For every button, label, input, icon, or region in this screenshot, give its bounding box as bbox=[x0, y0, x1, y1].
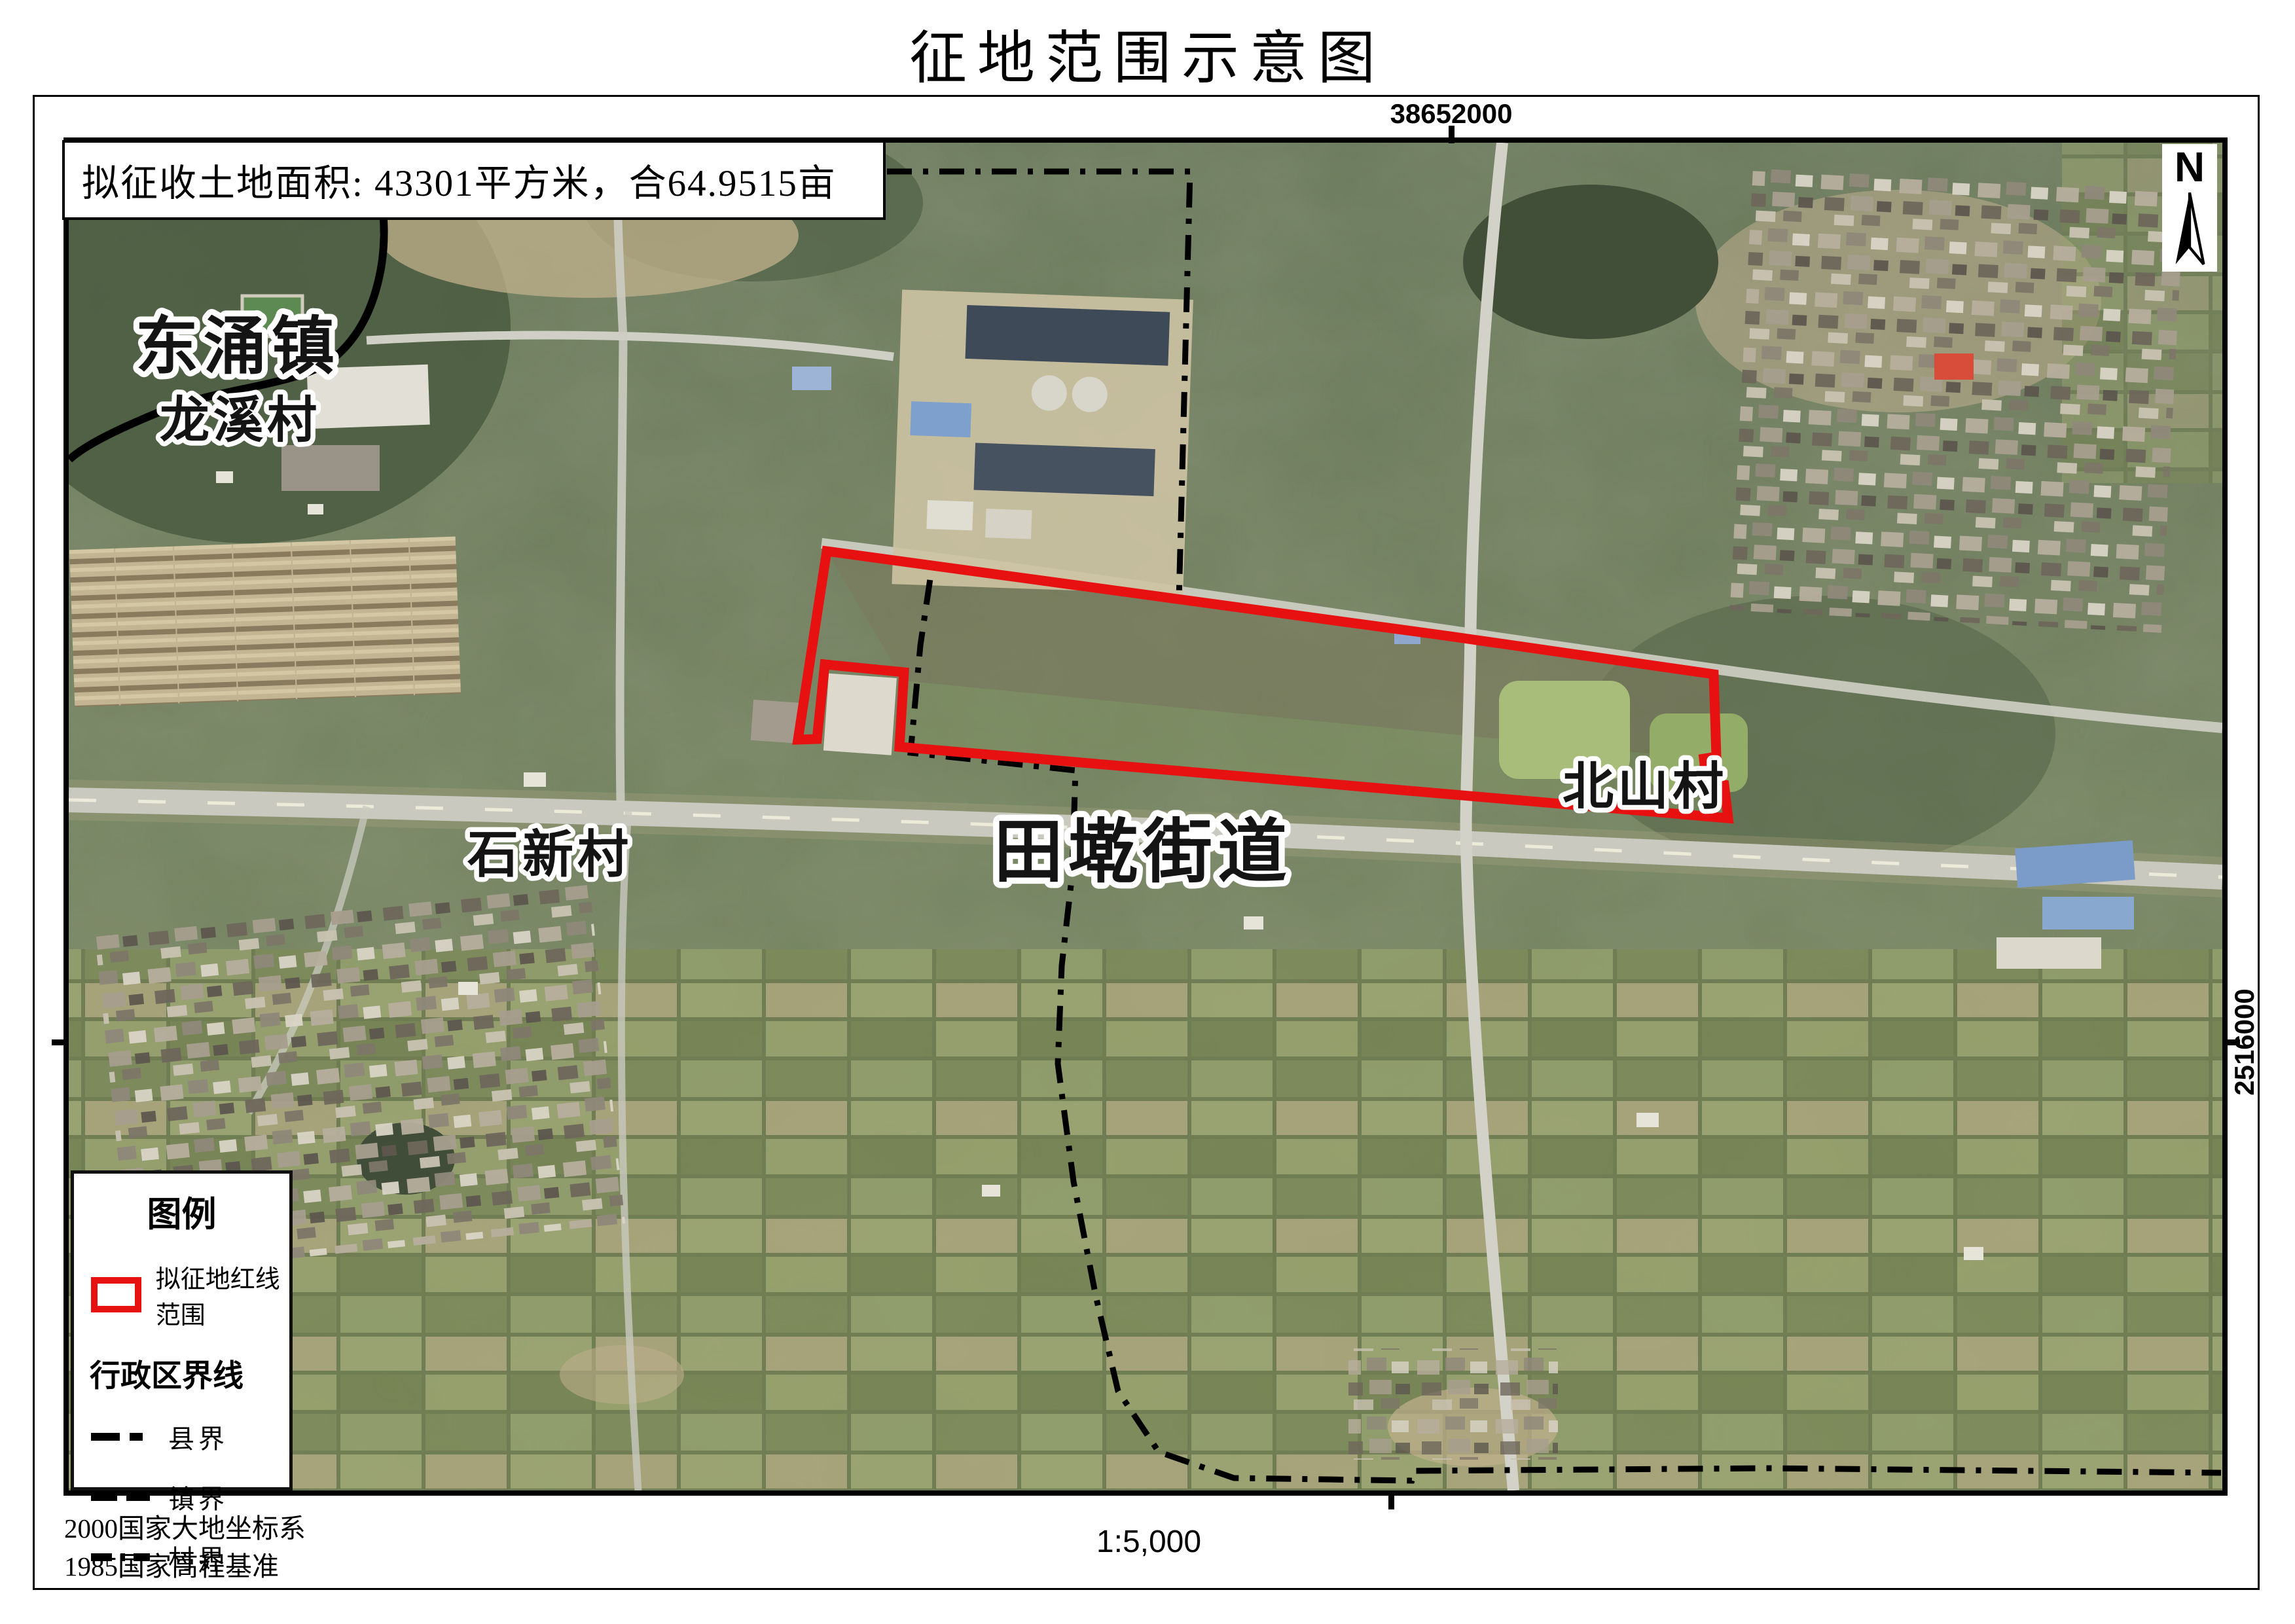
legend-admin-heading: 行政区界线 bbox=[90, 1350, 289, 1396]
label-tianqian-street: 田墘街道 bbox=[994, 814, 1292, 891]
village-boundary-label: 村界 bbox=[168, 1538, 228, 1576]
legend-row-county: 县界 bbox=[91, 1418, 289, 1456]
town-boundary-label: 镇界 bbox=[168, 1478, 228, 1516]
label-beishan-village: 北山村 bbox=[1563, 757, 1727, 815]
red-roof bbox=[1934, 353, 1974, 380]
north-arrow-icon bbox=[2168, 190, 2211, 268]
treatment-plant bbox=[892, 289, 1193, 594]
hamlet-buildings bbox=[1348, 1348, 1558, 1460]
lumber-yard bbox=[69, 537, 461, 707]
legend-row-redline: 拟征地红线范围 bbox=[91, 1259, 289, 1331]
red-line-swatch bbox=[91, 1277, 141, 1312]
map-canvas: 东涌镇 龙溪村 石新村 田墘街道 北山村 bbox=[69, 143, 2222, 1490]
county-line-swatch bbox=[91, 1432, 150, 1441]
info-box-text: 拟征收土地面积: 43301平方米，合64.9515亩 bbox=[82, 153, 837, 207]
grid-tick-bottom bbox=[1388, 1493, 1394, 1509]
legend: 图例 拟征地红线范围 行政区界线 县界 镇界 村界 bbox=[71, 1170, 293, 1490]
town-line-swatch bbox=[91, 1492, 150, 1502]
county-boundary-label: 县界 bbox=[168, 1418, 228, 1456]
north-arrow: N bbox=[2162, 144, 2217, 272]
village-line-swatch bbox=[91, 1553, 150, 1562]
label-dongchong-town: 东涌镇 bbox=[136, 312, 340, 382]
coordinate-label-top: 38652000 bbox=[1375, 98, 1528, 130]
grid-tick-left bbox=[52, 1039, 69, 1045]
red-line-label: 拟征地红线范围 bbox=[156, 1259, 289, 1331]
legend-row-town: 镇界 bbox=[91, 1478, 289, 1516]
north-label: N bbox=[2175, 144, 2205, 190]
legend-row-village: 村界 bbox=[91, 1538, 289, 1576]
grid-tick-top bbox=[1449, 126, 1455, 143]
village-beishan-buildings bbox=[1730, 166, 2185, 633]
road bbox=[617, 143, 623, 802]
land-acquisition-map-page: { "title": "征地范围示意图", "info_box": { "tex… bbox=[0, 0, 2295, 1624]
label-shixin-village: 石新村 bbox=[467, 825, 632, 883]
legend-title: 图例 bbox=[74, 1187, 289, 1236]
satellite-map: 东涌镇 龙溪村 石新村 田墘街道 北山村 bbox=[69, 143, 2222, 1490]
info-box: 拟征收土地面积: 43301平方米，合64.9515亩 bbox=[62, 140, 886, 220]
grid-tick-right bbox=[2225, 1039, 2240, 1045]
label-longxi-village: 龙溪村 bbox=[160, 393, 321, 448]
scale-text: 1:5,000 bbox=[1018, 1524, 1280, 1560]
page-title: 征地范围示意图 bbox=[0, 12, 2295, 95]
